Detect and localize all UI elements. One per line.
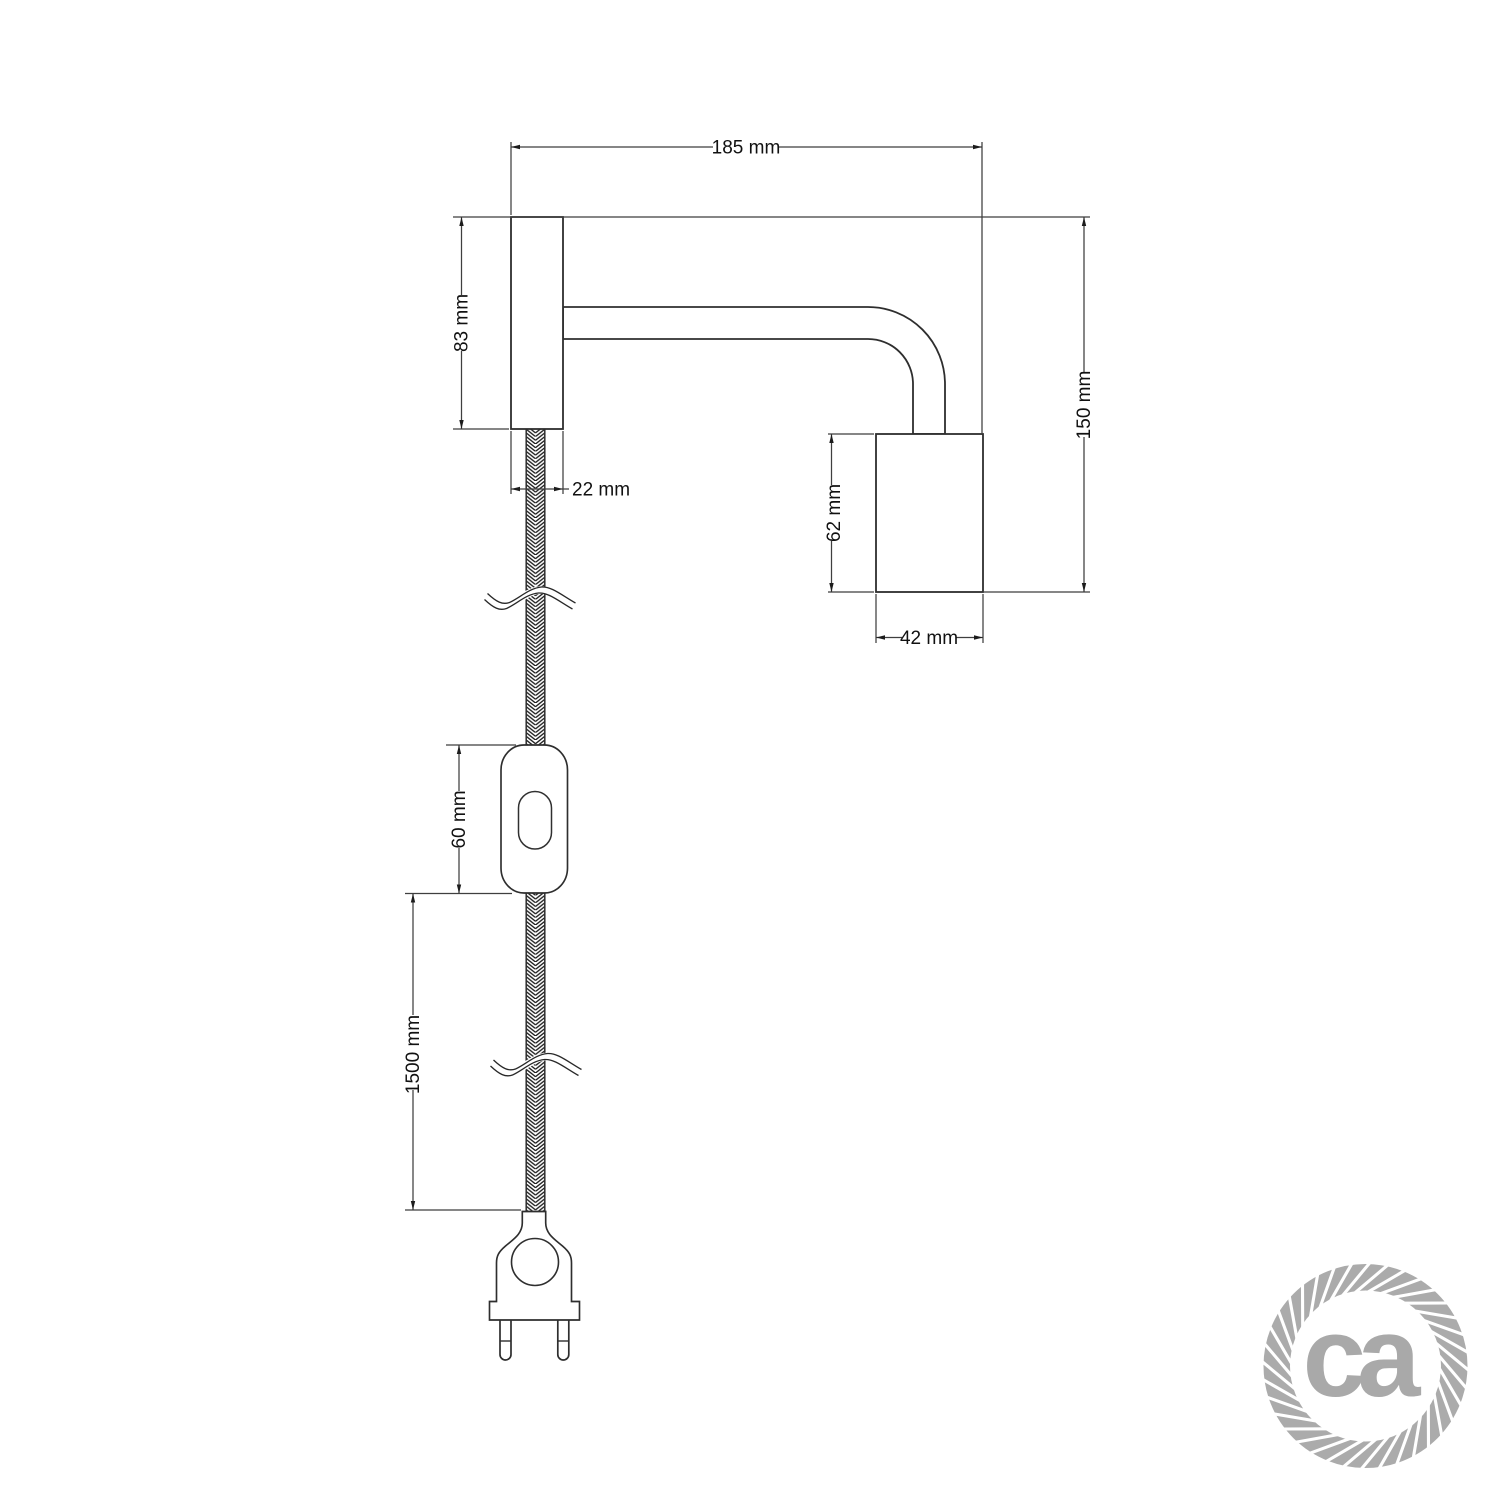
svg-text:62 mm: 62 mm <box>824 484 845 542</box>
svg-text:150 mm: 150 mm <box>1074 371 1095 440</box>
svg-text:22 mm: 22 mm <box>572 480 630 501</box>
svg-text:185 mm: 185 mm <box>712 138 781 159</box>
svg-text:60 mm: 60 mm <box>449 790 470 848</box>
svg-text:ca: ca <box>1303 1294 1422 1421</box>
svg-text:1500 mm: 1500 mm <box>403 1015 424 1094</box>
svg-text:83 mm: 83 mm <box>452 294 473 352</box>
svg-text:42 mm: 42 mm <box>900 628 958 649</box>
